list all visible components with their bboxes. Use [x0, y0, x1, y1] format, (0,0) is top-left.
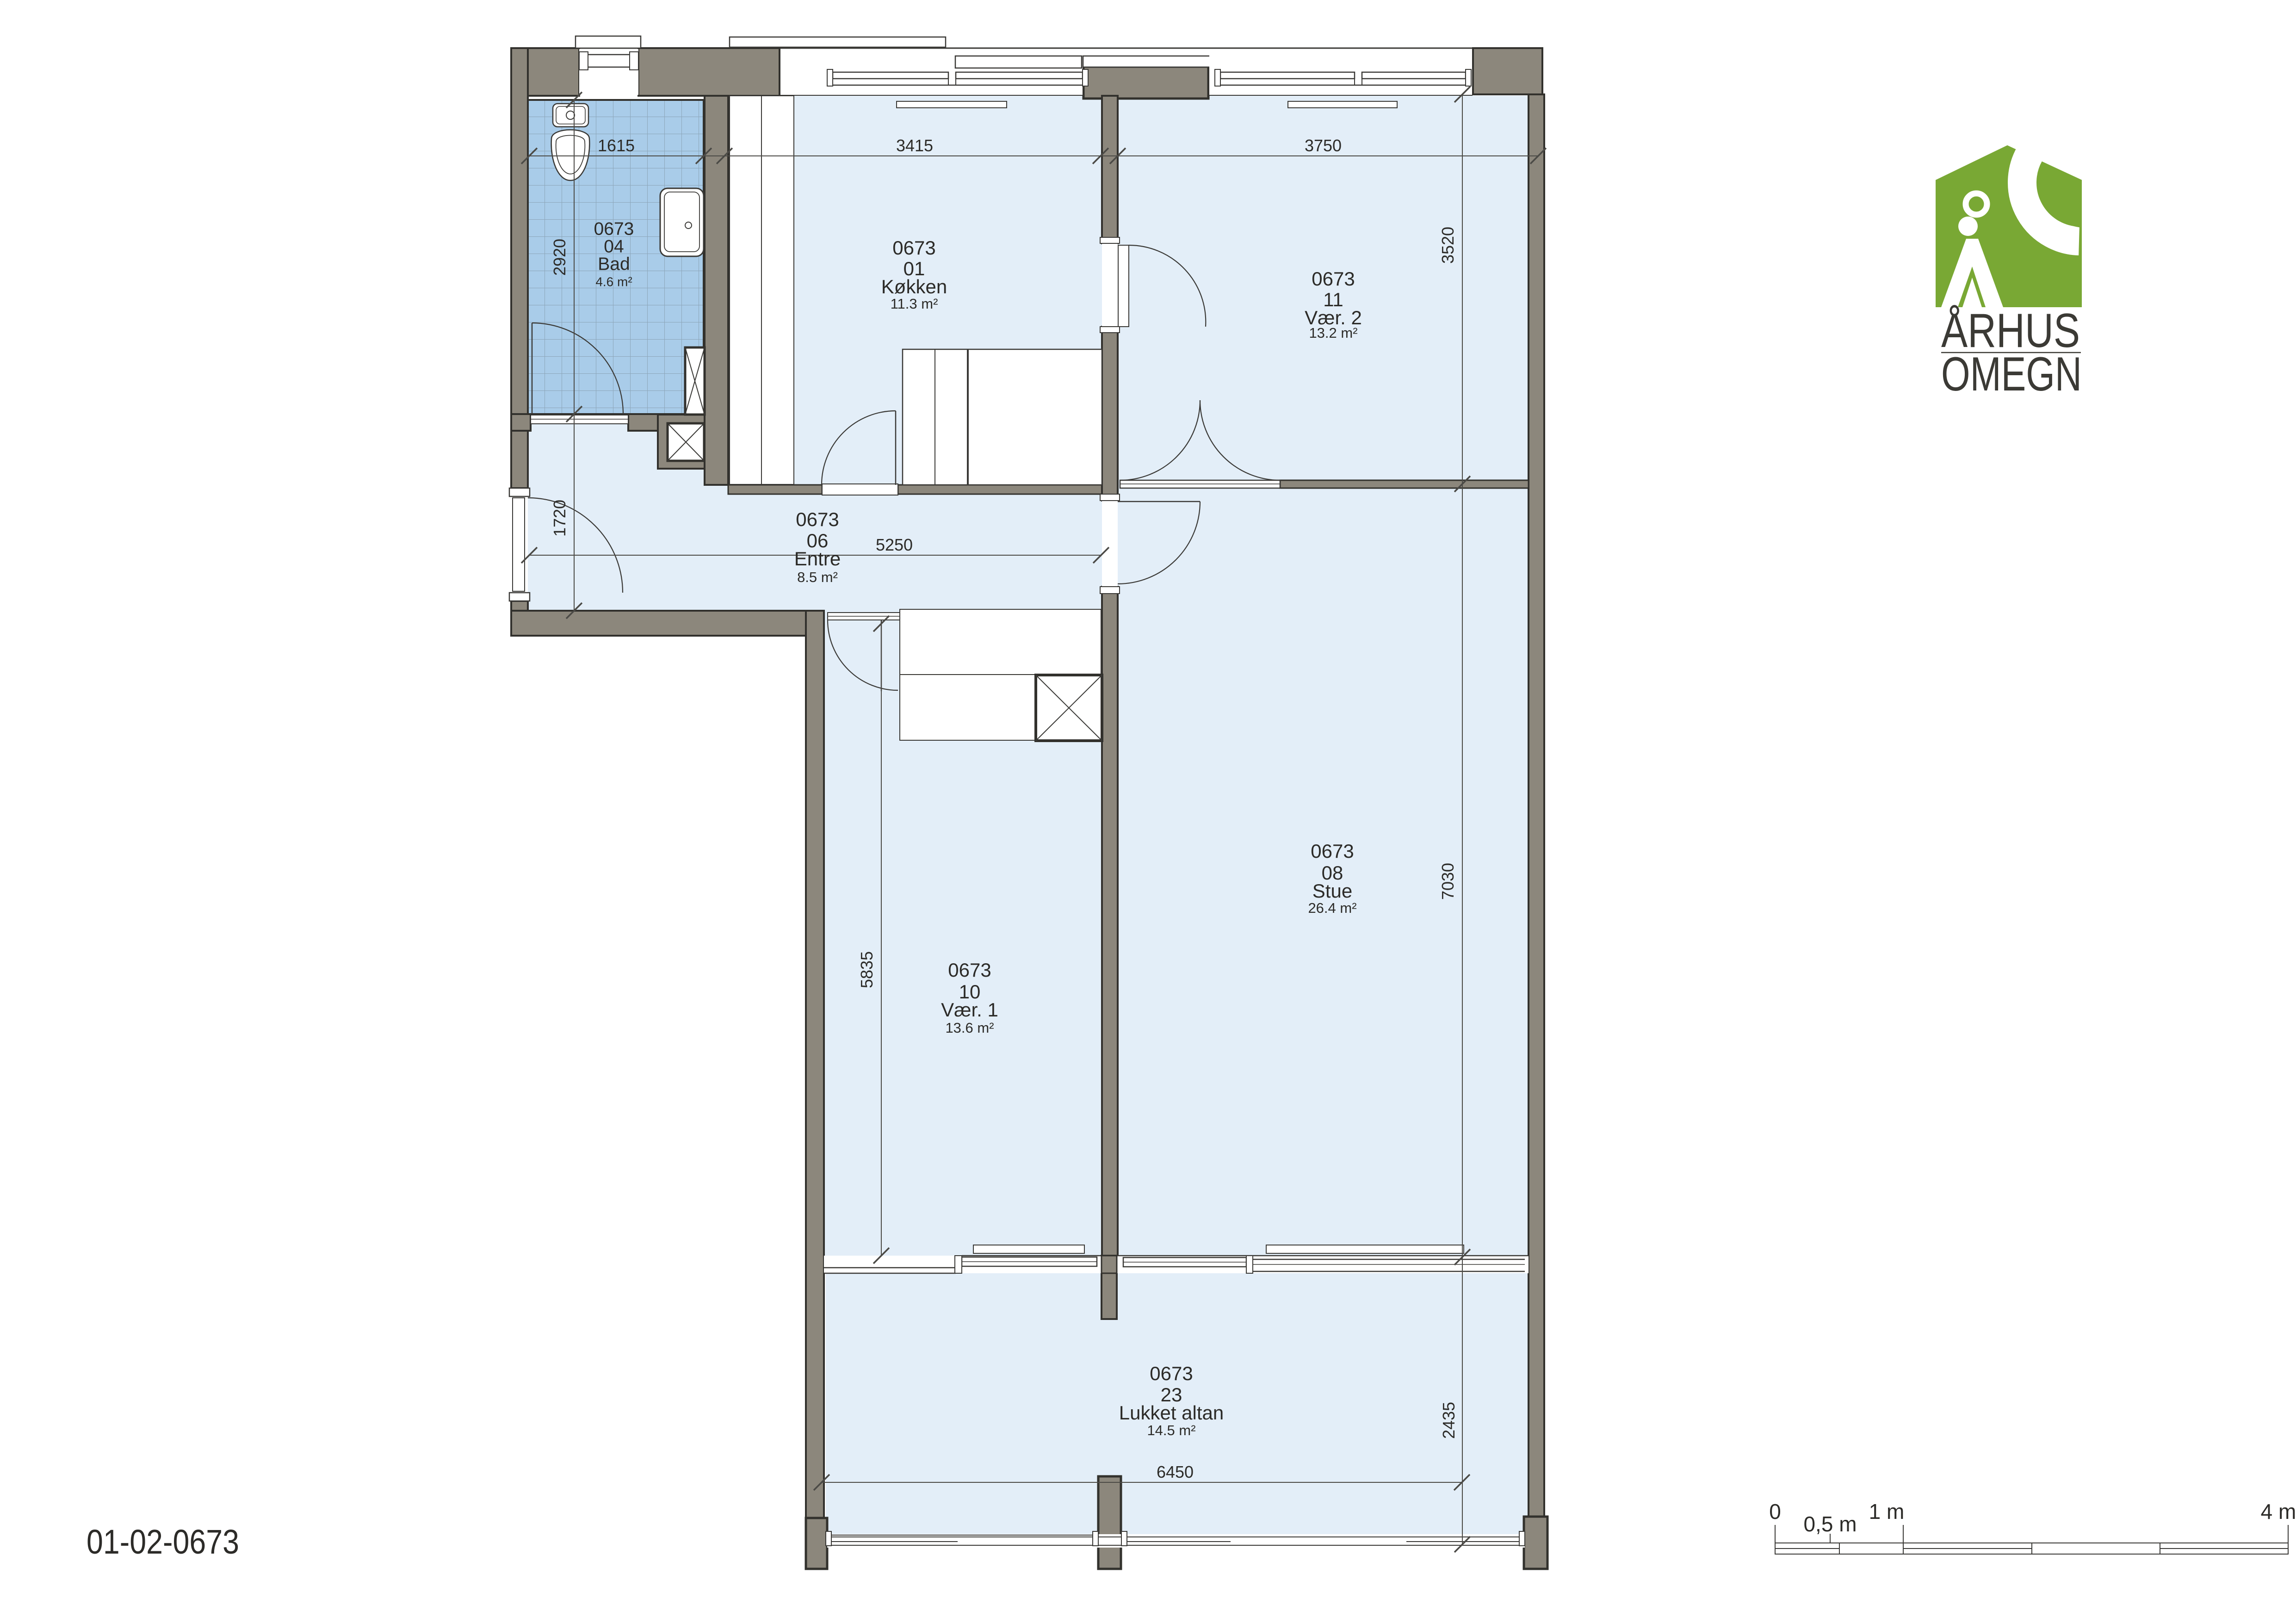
svg-text:0673: 0673 [1311, 840, 1354, 862]
svg-text:OMEGN: OMEGN [1941, 347, 2082, 401]
svg-text:8.5 m²: 8.5 m² [797, 569, 838, 585]
svg-text:26.4 m²: 26.4 m² [1308, 900, 1356, 916]
svg-text:0673: 0673 [892, 237, 935, 259]
svg-text:1720: 1720 [550, 500, 569, 537]
svg-text:5250: 5250 [876, 535, 913, 554]
svg-text:Entre: Entre [794, 548, 841, 570]
svg-text:0673: 0673 [1150, 1363, 1193, 1384]
svg-text:0: 0 [1769, 1499, 1781, 1524]
svg-text:3415: 3415 [896, 136, 933, 155]
svg-text:Stue: Stue [1312, 880, 1352, 902]
svg-text:Lukket altan: Lukket altan [1119, 1402, 1224, 1424]
svg-text:0673: 0673 [948, 959, 991, 981]
svg-text:3750: 3750 [1305, 136, 1342, 155]
svg-text:13.6 m²: 13.6 m² [945, 1020, 994, 1036]
svg-text:11.3 m²: 11.3 m² [891, 296, 938, 312]
svg-text:14.5 m²: 14.5 m² [1147, 1422, 1195, 1438]
svg-text:7030: 7030 [1438, 863, 1457, 900]
svg-text:04: 04 [604, 236, 624, 256]
svg-text:0673: 0673 [796, 508, 839, 530]
svg-text:01-02-0673: 01-02-0673 [87, 1523, 239, 1561]
svg-text:5835: 5835 [857, 951, 876, 988]
svg-text:2920: 2920 [550, 239, 569, 276]
svg-text:1 m: 1 m [1869, 1499, 1905, 1524]
svg-text:0,5 m: 0,5 m [1803, 1512, 1857, 1536]
svg-text:13.2 m²: 13.2 m² [1309, 325, 1357, 341]
svg-text:Køkken: Køkken [881, 276, 947, 297]
svg-text:3520: 3520 [1438, 227, 1457, 264]
svg-text:4 m: 4 m [2261, 1499, 2296, 1524]
svg-text:1615: 1615 [598, 136, 635, 155]
svg-text:0673: 0673 [594, 219, 634, 239]
svg-text:Vær. 1: Vær. 1 [941, 999, 998, 1021]
svg-text:4.6 m²: 4.6 m² [595, 274, 632, 289]
svg-text:2435: 2435 [1439, 1402, 1458, 1439]
svg-text:0673: 0673 [1312, 268, 1355, 290]
svg-text:Bad: Bad [598, 254, 630, 274]
svg-text:6450: 6450 [1157, 1462, 1194, 1481]
